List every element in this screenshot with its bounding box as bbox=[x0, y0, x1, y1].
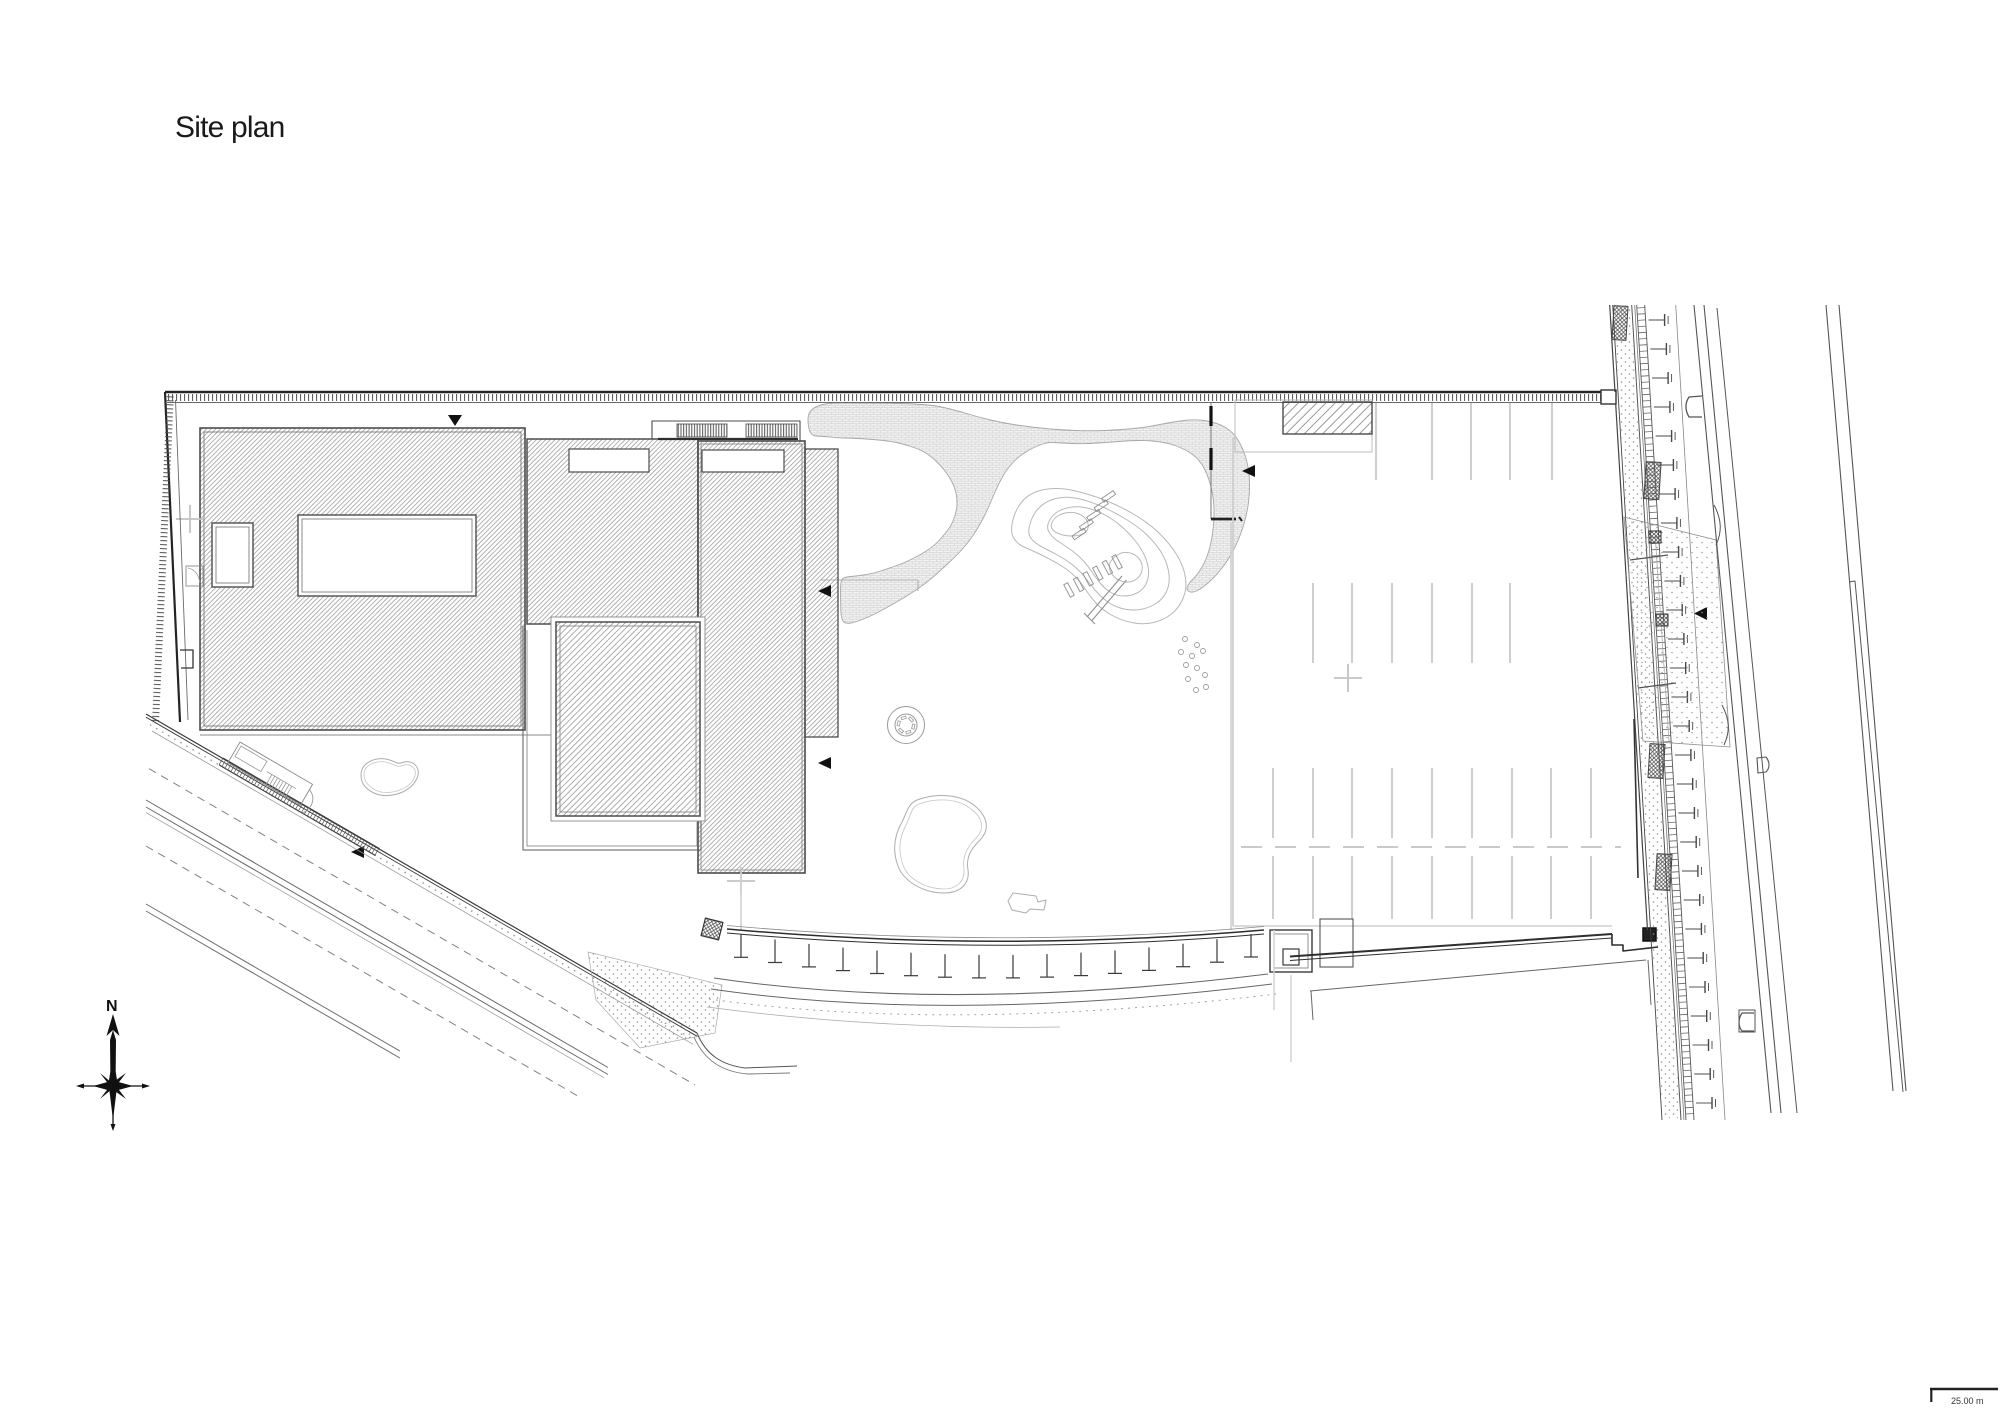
svg-text:N: N bbox=[106, 998, 118, 1015]
svg-text:25.00 m: 25.00 m bbox=[1951, 1396, 1984, 1406]
svg-text:Site plan: Site plan bbox=[175, 111, 285, 144]
